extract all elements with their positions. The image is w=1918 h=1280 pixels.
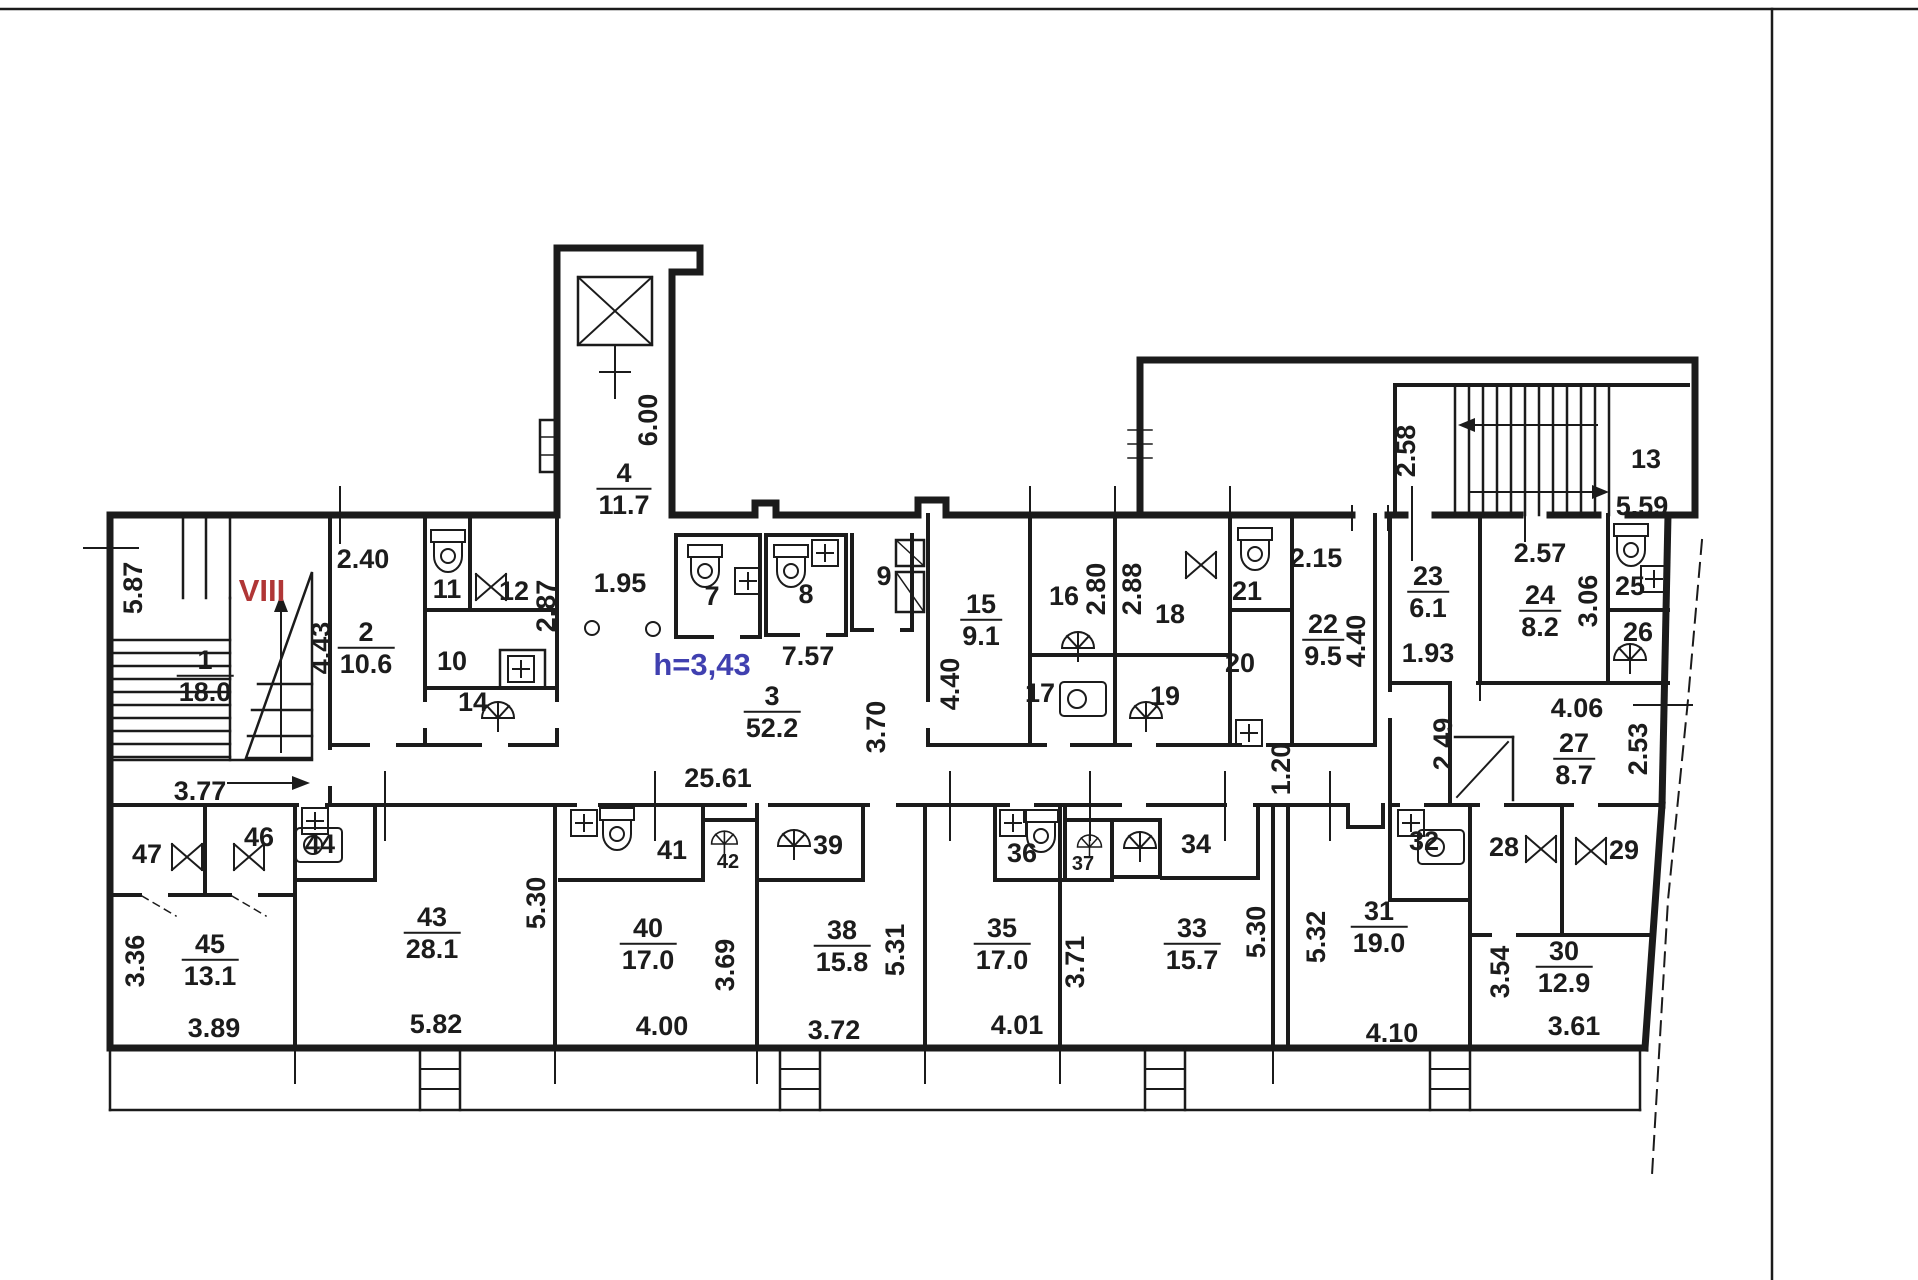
dim-label: 5.59	[1616, 492, 1669, 522]
room-number: 45	[182, 929, 239, 961]
room-number: 33	[1164, 913, 1221, 945]
room-label-37: 37	[1072, 853, 1094, 875]
room-label-15: 159.1	[960, 589, 1002, 651]
room-label-21: 21	[1232, 577, 1262, 607]
room-label-33: 3315.7	[1164, 913, 1221, 975]
room-area: 17.0	[974, 945, 1031, 975]
dim-label: 2.58	[1392, 425, 1422, 478]
room-label-19: 19	[1150, 682, 1180, 712]
room-area: 6.1	[1407, 593, 1449, 623]
room-area: 10.6	[338, 649, 395, 679]
room-number: 35	[974, 913, 1031, 945]
dim-label: 2.57	[1514, 539, 1567, 569]
dim-label: 3.54	[1486, 946, 1516, 999]
room-label-30: 3012.9	[1536, 936, 1593, 998]
room-label-4: 411.7	[596, 458, 651, 520]
dim-label: 4.40	[1342, 615, 1372, 668]
dim-label: 5.32	[1302, 911, 1332, 964]
room-label-20: 20	[1225, 649, 1255, 679]
section-note: VIII	[239, 574, 286, 608]
room-label-31: 3119.0	[1351, 896, 1408, 958]
room-label-17: 17	[1025, 679, 1055, 709]
room-area: 8.2	[1519, 612, 1561, 642]
dim-label: 5.82	[410, 1010, 463, 1040]
room-label-45: 4513.1	[182, 929, 239, 991]
room-area: 17.0	[620, 945, 677, 975]
dim-label: 6.00	[634, 394, 664, 447]
dim-label: 3.72	[808, 1016, 861, 1046]
room-number: 31	[1351, 896, 1408, 928]
room-area: 11.7	[596, 490, 651, 520]
room-number: 4	[596, 458, 651, 490]
dim-label: 2.49	[1429, 718, 1459, 771]
room-label-40: 4017.0	[620, 913, 677, 975]
room-label-18: 18	[1155, 600, 1185, 630]
dim-label: 3.89	[188, 1014, 241, 1044]
room-label-23: 236.1	[1407, 561, 1449, 623]
dim-label: 5.30	[522, 877, 552, 930]
room-number: 27	[1553, 728, 1595, 760]
room-label-39: 39	[813, 831, 843, 861]
room-number: 24	[1519, 580, 1561, 612]
room-area: 8.7	[1553, 760, 1595, 790]
room-area: 9.1	[960, 621, 1002, 651]
room-label-32: 32	[1409, 827, 1439, 857]
room-number: 22	[1302, 609, 1344, 641]
room-label-42: 42	[717, 851, 739, 873]
room-label-8: 8	[798, 580, 813, 610]
dim-label: 4.00	[636, 1012, 689, 1042]
room-label-47: 47	[132, 840, 162, 870]
room-number: 1	[177, 645, 234, 677]
room-label-10: 10	[437, 647, 467, 677]
room-label-7: 7	[704, 582, 719, 612]
room-label-3: 352.2	[744, 681, 801, 743]
room-label-34: 34	[1181, 830, 1211, 860]
dim-label: 2.40	[337, 545, 390, 575]
room-label-27: 278.7	[1553, 728, 1595, 790]
room-label-28: 28	[1489, 833, 1519, 863]
dim-label: 1.93	[1402, 639, 1455, 669]
dim-label: 4.06	[1551, 694, 1604, 724]
room-label-43: 4328.1	[404, 902, 461, 964]
room-area: 52.2	[744, 713, 801, 743]
dim-label: 4.43	[307, 622, 337, 675]
dim-label: 2.80	[1082, 563, 1112, 616]
room-label-44: 44	[305, 830, 335, 860]
room-label-35: 3517.0	[974, 913, 1031, 975]
room-number: 30	[1536, 936, 1593, 968]
room-area: 15.7	[1164, 945, 1221, 975]
room-label-25: 25	[1615, 572, 1645, 602]
room-number: 2	[338, 617, 395, 649]
dim-label: 25.61	[684, 764, 752, 794]
room-label-13: 13	[1631, 445, 1661, 475]
room-label-16: 16	[1049, 582, 1079, 612]
room-number: 43	[404, 902, 461, 934]
dim-label: 3.71	[1061, 936, 1091, 989]
room-number: 15	[960, 589, 1002, 621]
room-label-29: 29	[1609, 836, 1639, 866]
room-label-26: 26	[1623, 618, 1653, 648]
dim-label: 1.95	[594, 569, 647, 599]
dim-label: 2.15	[1290, 544, 1343, 574]
dim-label: 7.57	[782, 642, 835, 672]
room-label-38: 3815.8	[814, 915, 871, 977]
floor-plan-page: 118.0210.6352.2411.77891011121314159.116…	[0, 0, 1918, 1280]
room-label-2: 210.6	[338, 617, 395, 679]
room-number: 40	[620, 913, 677, 945]
dim-label: 3.61	[1548, 1012, 1601, 1042]
dim-label: 3.36	[121, 935, 151, 988]
dim-label: 5.31	[881, 924, 911, 977]
room-area: 13.1	[182, 961, 239, 991]
room-label-14: 14	[458, 688, 488, 718]
dim-label: 3.70	[862, 701, 892, 754]
room-label-12: 12	[499, 577, 529, 607]
room-number: 3	[744, 681, 801, 713]
room-area: 18.0	[177, 677, 234, 707]
height-note: h=3,43	[653, 648, 750, 682]
dim-label: 2.88	[1118, 563, 1148, 616]
dim-label: 4.10	[1366, 1019, 1419, 1049]
room-label-36: 36	[1007, 839, 1037, 869]
room-number: 23	[1407, 561, 1449, 593]
room-label-9: 9	[876, 562, 891, 592]
room-area: 19.0	[1351, 928, 1408, 958]
room-label-24: 248.2	[1519, 580, 1561, 642]
room-label-1: 118.0	[177, 645, 234, 707]
room-label-41: 41	[657, 836, 687, 866]
room-area: 12.9	[1536, 968, 1593, 998]
dim-label: 1.20	[1267, 743, 1297, 796]
dim-label: 5.30	[1242, 906, 1272, 959]
plan-labels: 118.0210.6352.2411.77891011121314159.116…	[0, 0, 1918, 1280]
dim-label: 5.87	[119, 562, 149, 615]
room-area: 15.8	[814, 947, 871, 977]
room-area: 9.5	[1302, 641, 1344, 671]
room-label-11: 11	[433, 575, 462, 605]
dim-label: 4.01	[991, 1011, 1044, 1041]
dim-label: 2.53	[1624, 723, 1654, 776]
dim-label: 3.06	[1574, 575, 1604, 628]
room-area: 28.1	[404, 934, 461, 964]
dim-label: 2.87	[532, 580, 562, 633]
room-number: 38	[814, 915, 871, 947]
dim-label: 3.69	[711, 939, 741, 992]
dim-label: 3.77	[174, 777, 227, 807]
room-label-22: 229.5	[1302, 609, 1344, 671]
dim-label: 4.40	[936, 658, 966, 711]
room-label-46: 46	[244, 823, 274, 853]
